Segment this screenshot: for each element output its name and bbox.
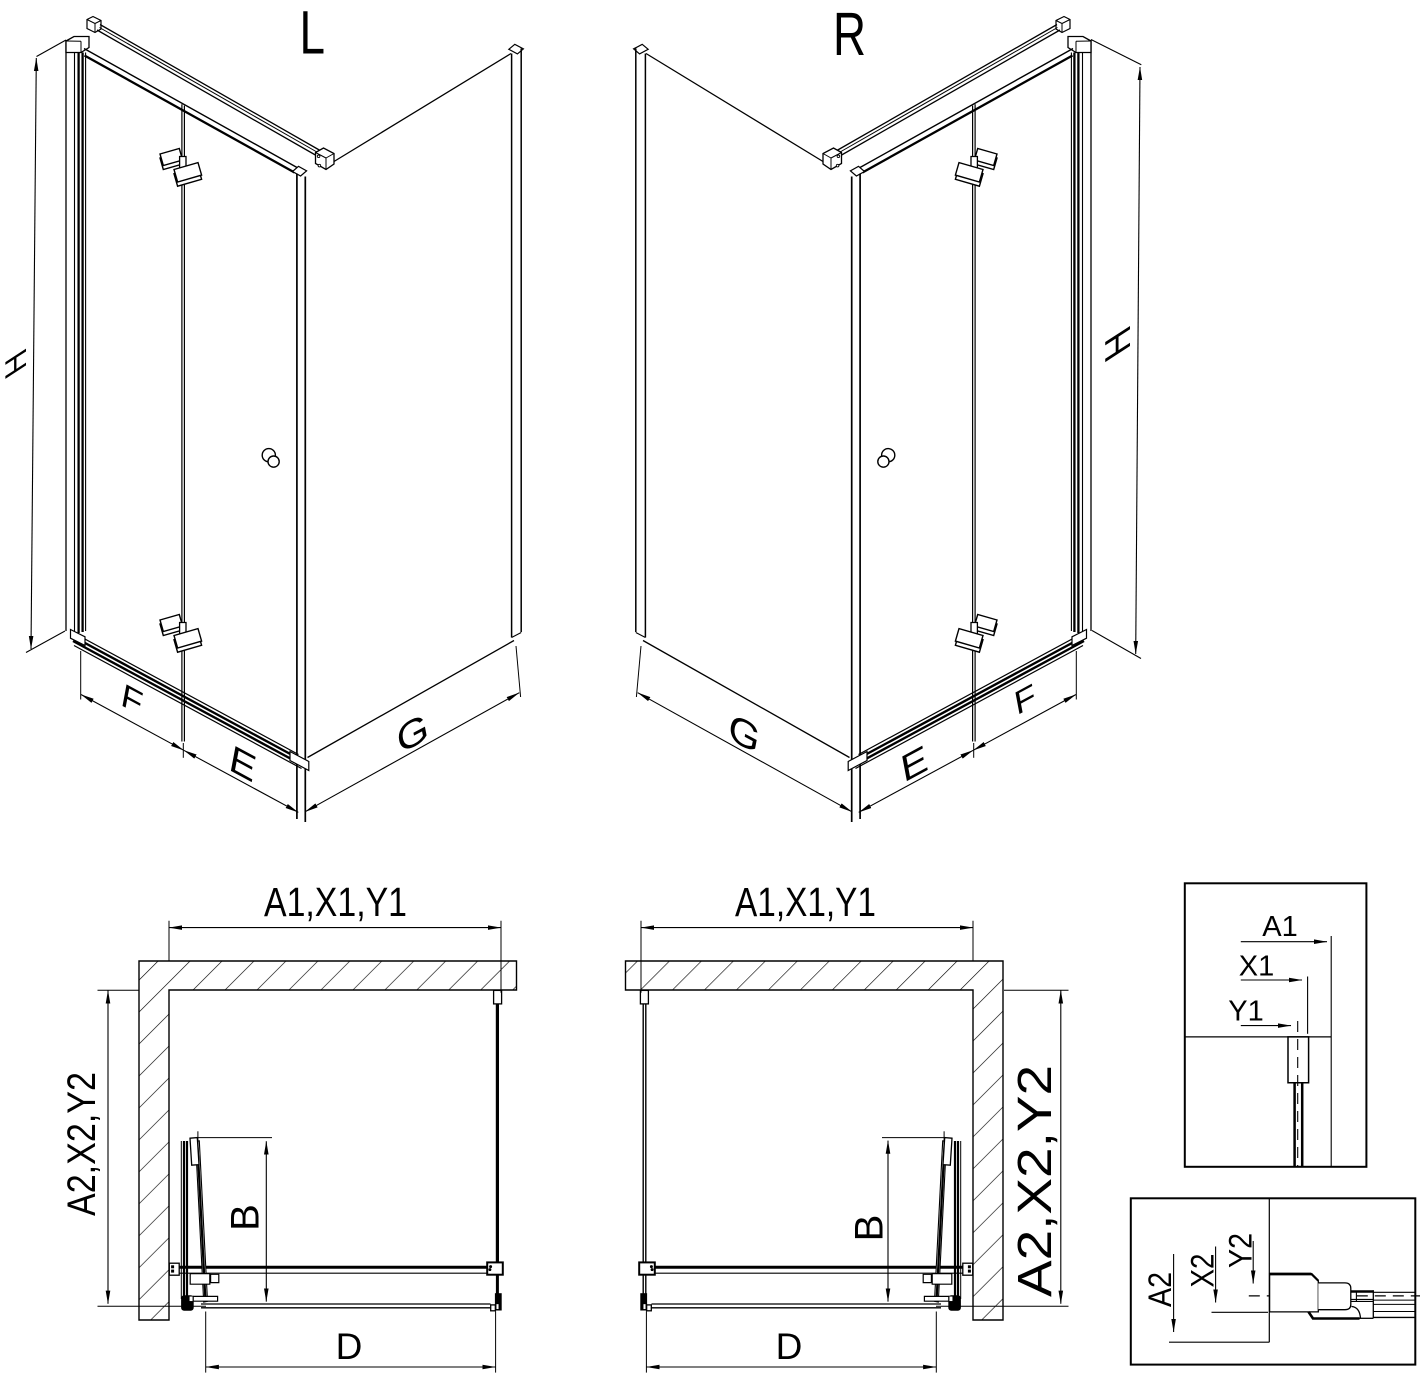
svg-text:D: D <box>776 1326 803 1367</box>
svg-text:A1,X1,Y1: A1,X1,Y1 <box>735 879 876 925</box>
svg-text:A1,X1,Y1: A1,X1,Y1 <box>264 879 407 925</box>
svg-text:A2,X2,Y2: A2,X2,Y2 <box>60 1072 104 1216</box>
svg-text:A2: A2 <box>1142 1272 1178 1307</box>
svg-text:B: B <box>848 1215 892 1242</box>
svg-text:A2,X2,Y2: A2,X2,Y2 <box>1009 1065 1062 1297</box>
svg-text:L: L <box>300 0 326 67</box>
svg-text:Y1: Y1 <box>1228 996 1263 1028</box>
svg-text:X1: X1 <box>1239 951 1274 983</box>
svg-text:B: B <box>224 1204 268 1231</box>
svg-text:A1: A1 <box>1262 911 1297 943</box>
svg-text:R: R <box>833 0 866 68</box>
svg-text:D: D <box>336 1326 363 1367</box>
